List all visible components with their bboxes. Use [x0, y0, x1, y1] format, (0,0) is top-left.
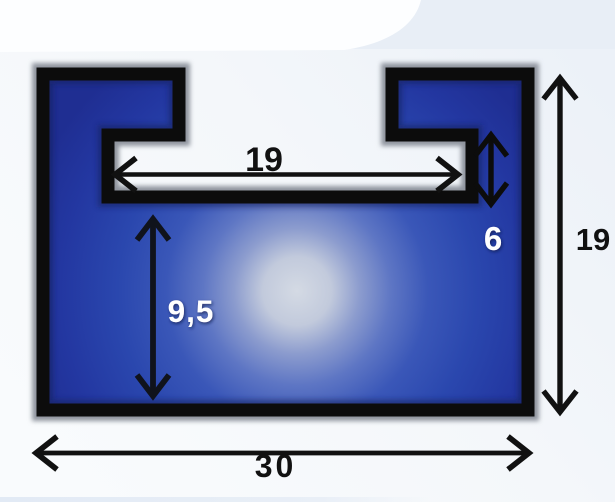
- svg-text:30: 30: [255, 448, 297, 484]
- svg-text:19: 19: [245, 141, 283, 179]
- svg-text:9,5: 9,5: [168, 293, 215, 329]
- svg-text:19: 19: [576, 222, 610, 257]
- svg-text:6: 6: [484, 220, 502, 257]
